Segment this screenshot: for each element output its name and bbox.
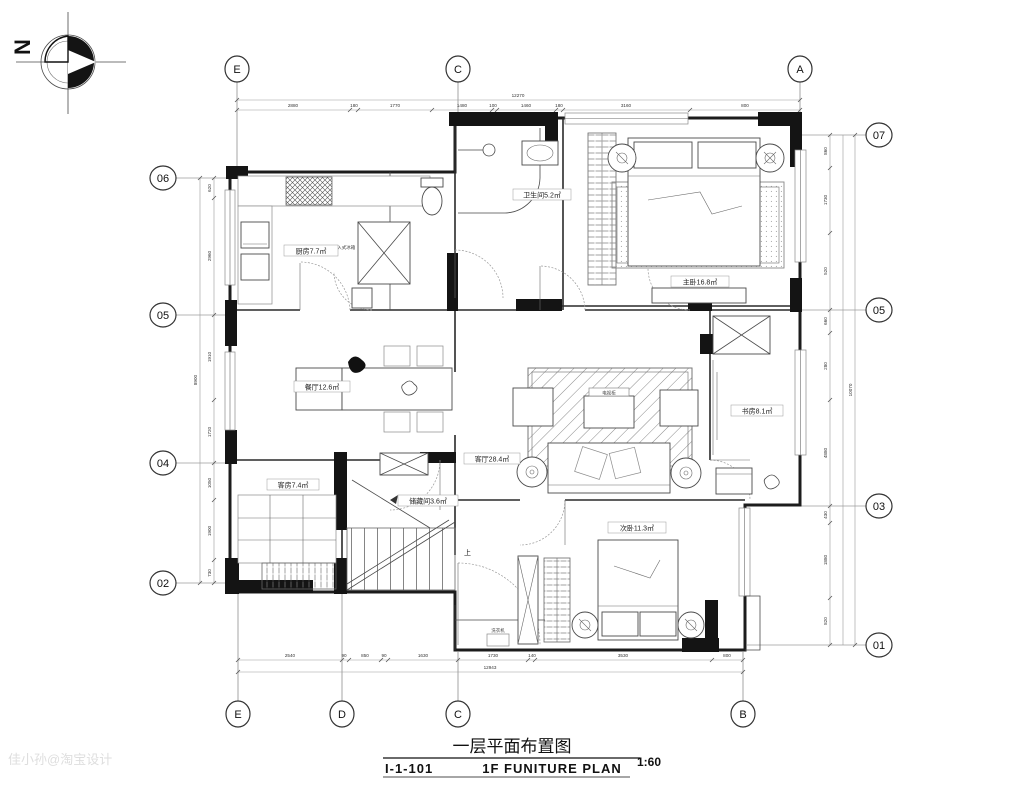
svg-text:3530: 3530 (618, 653, 629, 658)
svg-text:1730: 1730 (823, 194, 828, 205)
watermark: 佳小孙@淘宝设计 (8, 752, 112, 767)
dim-top-total: 12270 (512, 93, 525, 98)
tv-cabinet: 电视柜 (584, 388, 634, 428)
svg-text:850: 850 (361, 653, 369, 658)
window-dining-left (225, 352, 235, 430)
svg-text:2880: 2880 (288, 103, 299, 108)
svg-text:1900: 1900 (207, 525, 212, 536)
label-study: 书房8.1㎡ (731, 405, 783, 416)
washing-machine: 洗衣机 (487, 627, 509, 646)
label-dining: 餐厅12.6㎡ (294, 381, 350, 392)
svg-text:卫生间5.2㎡: 卫生间5.2㎡ (523, 191, 561, 200)
dimensions-bottom: 2540 90 850 90 1630 1730 140 3530 800 12… (236, 653, 745, 674)
svg-text:主卧16.8㎡: 主卧16.8㎡ (683, 278, 718, 287)
label-bedroom2: 次卧11.3㎡ (608, 522, 666, 533)
svg-text:03: 03 (873, 501, 885, 513)
svg-text:660: 660 (823, 317, 828, 325)
window-kitchen-left (225, 190, 235, 285)
grid-bubble-right-07: 07 (802, 123, 892, 147)
svg-text:D: D (338, 709, 346, 721)
svg-text:100: 100 (489, 103, 497, 108)
grid-bubble-left-02: 02 (150, 571, 232, 595)
grid-bubble-bottom-C: C (446, 652, 470, 727)
living-room: 电视柜 客厅28.4㎡ (464, 368, 701, 493)
svg-text:05: 05 (157, 310, 169, 322)
grid-bubble-right-05: 05 (802, 298, 892, 322)
study-room: 书房8.1㎡ (713, 316, 783, 494)
label-kitchen: 厨房7.7㎡ (284, 245, 338, 256)
svg-text:1910: 1910 (207, 351, 212, 362)
svg-text:客房7.4㎡: 客房7.4㎡ (278, 481, 309, 490)
svg-text:620: 620 (207, 184, 212, 192)
svg-text:1480: 1480 (457, 103, 468, 108)
svg-text:430: 430 (823, 511, 828, 519)
svg-text:01: 01 (873, 640, 885, 652)
dimensions-left: 620 2960 1910 1720 1050 1900 730 8900 (193, 176, 216, 585)
svg-text:C: C (454, 709, 462, 721)
title-block: 一层平面布置图 I-1-101 1F FUNITURE PLAN 1:60 (383, 737, 661, 777)
guest-room: 客房7.4㎡ (238, 479, 336, 589)
svg-text:4880: 4880 (823, 447, 828, 458)
title-code: I-1-101 (385, 761, 433, 776)
svg-text:储藏间3.6㎡: 储藏间3.6㎡ (409, 497, 447, 506)
drawing-sheet: N E C A E D C B 06 (0, 0, 1013, 785)
dim-right-total: 10070 (848, 383, 853, 396)
master-bed (628, 138, 760, 266)
svg-text:1050: 1050 (207, 477, 212, 488)
toilet (421, 178, 443, 215)
svg-text:07: 07 (873, 130, 885, 142)
svg-text:860: 860 (823, 147, 828, 155)
window-bedroom2-right (739, 508, 750, 596)
svg-text:90: 90 (341, 653, 347, 658)
svg-text:C: C (454, 64, 462, 76)
bed2 (598, 540, 678, 640)
svg-text:E: E (233, 64, 240, 76)
svg-text:800: 800 (741, 103, 749, 108)
dimensions-top: 12270 2880 180 1770 1480 100 1460 180 31… (235, 93, 802, 112)
svg-text:洗衣机: 洗衣机 (491, 627, 505, 634)
svg-text:90: 90 (381, 653, 387, 658)
svg-text:280: 280 (823, 362, 828, 370)
master-bedroom: 主卧16.8㎡ (588, 133, 784, 303)
grid-bubble-top-A: A (788, 56, 812, 118)
dining-room: 餐厅12.6㎡ (294, 346, 452, 432)
svg-text:05: 05 (873, 305, 885, 317)
stairs-up-label: 上 (464, 548, 471, 557)
svg-text:820: 820 (823, 617, 828, 625)
grid-bubble-right-01: 01 (747, 633, 892, 657)
svg-text:E: E (234, 709, 241, 721)
bathroom: 卫生间5.2㎡ (458, 128, 571, 213)
svg-text:电视柜: 电视柜 (602, 390, 616, 397)
svg-text:1880: 1880 (823, 554, 828, 565)
grid-bubble-left-06: 06 (150, 166, 232, 190)
label-guest: 客房7.4㎡ (267, 479, 319, 490)
title-en: 1F FUNITURE PLAN (482, 761, 622, 776)
svg-text:1770: 1770 (390, 103, 401, 108)
grid-bubble-top-E: E (225, 56, 249, 170)
svg-text:次卧11.3㎡: 次卧11.3㎡ (620, 524, 654, 533)
svg-text:02: 02 (157, 578, 169, 590)
sofa (548, 443, 670, 493)
window-study-right (795, 350, 806, 455)
svg-text:1630: 1630 (418, 653, 429, 658)
window-master-right (795, 150, 806, 262)
svg-text:180: 180 (555, 103, 563, 108)
svg-text:180: 180 (350, 103, 358, 108)
svg-text:520: 520 (823, 267, 828, 275)
svg-text:A: A (796, 64, 804, 76)
svg-text:1460: 1460 (521, 103, 532, 108)
svg-text:B: B (739, 709, 746, 721)
svg-text:厨房7.7㎡: 厨房7.7㎡ (296, 247, 327, 256)
svg-text:1720: 1720 (207, 426, 212, 437)
svg-text:730: 730 (207, 569, 212, 577)
fridge: 嵌入式冰箱 (333, 222, 410, 284)
svg-text:800: 800 (723, 653, 731, 658)
label-bathroom: 卫生间5.2㎡ (513, 189, 571, 200)
grid-bubble-top-C: C (446, 56, 470, 118)
label-storage: 储藏间3.6㎡ (398, 495, 458, 506)
svg-text:书房8.1㎡: 书房8.1㎡ (742, 407, 773, 416)
svg-text:06: 06 (157, 173, 169, 185)
svg-text:140: 140 (528, 653, 536, 658)
bedroom2: 洗衣机 次卧11.3㎡ (487, 522, 760, 650)
svg-text:餐厅12.6㎡: 餐厅12.6㎡ (305, 383, 340, 392)
svg-text:04: 04 (157, 458, 169, 470)
north-label: N (10, 39, 35, 55)
svg-text:1730: 1730 (488, 653, 499, 658)
dim-bottom-total: 12943 (484, 665, 497, 670)
label-living: 客厅28.4㎡ (464, 453, 520, 464)
svg-text:客厅28.4㎡: 客厅28.4㎡ (475, 455, 510, 464)
title-scale: 1:60 (637, 755, 661, 769)
title-cn: 一层平面布置图 (453, 737, 572, 756)
window-master-top (565, 113, 688, 124)
svg-text:2540: 2540 (285, 653, 296, 658)
floor-plan-canvas: N E C A E D C B 06 (0, 0, 1013, 785)
dimensions-right: 860 1730 520 660 280 4880 430 1880 820 1… (823, 133, 857, 647)
stairs: 上 储藏间3.6㎡ (347, 453, 471, 590)
svg-text:3160: 3160 (621, 103, 632, 108)
grid-bubble-bottom-B: B (731, 652, 755, 727)
kitchen: 嵌入式冰箱 厨房7.7㎡ (238, 176, 443, 308)
svg-text:2960: 2960 (207, 250, 212, 261)
grid-bubble-left-04: 04 (150, 451, 232, 475)
dim-left-total: 8900 (193, 374, 198, 385)
north-compass: N (10, 12, 126, 114)
label-master: 主卧16.8㎡ (671, 276, 729, 287)
grid-bubble-left-05: 05 (150, 303, 232, 327)
